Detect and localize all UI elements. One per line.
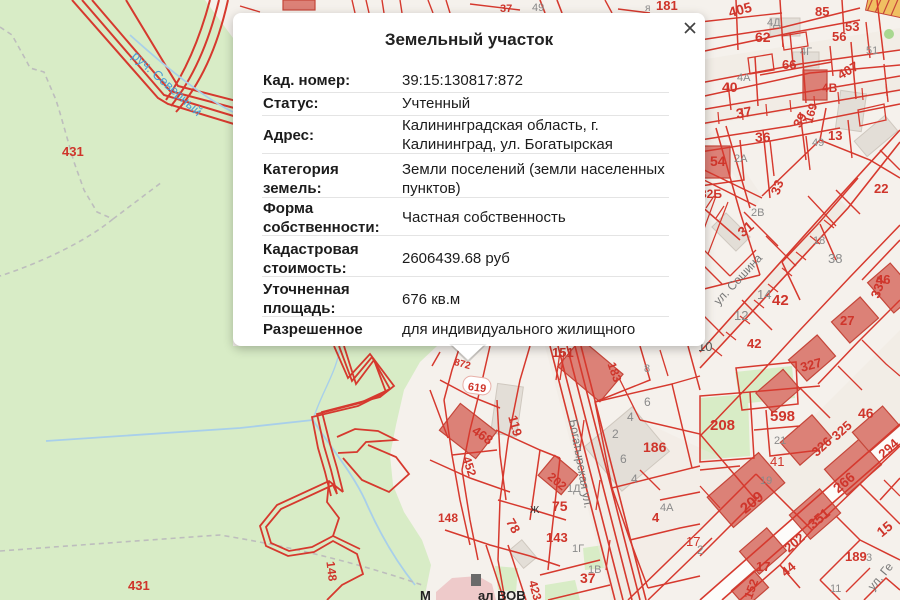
svg-text:19: 19 (760, 475, 772, 487)
svg-text:37: 37 (735, 103, 753, 121)
svg-text:4: 4 (631, 472, 638, 486)
svg-text:4Г: 4Г (800, 46, 812, 58)
svg-text:27: 27 (840, 313, 854, 328)
svg-text:6: 6 (644, 395, 651, 409)
svg-text:598: 598 (770, 408, 795, 425)
svg-text:6: 6 (620, 452, 627, 466)
svg-text:75: 75 (552, 498, 568, 514)
svg-text:2: 2 (697, 543, 704, 557)
svg-text:4: 4 (627, 410, 634, 424)
svg-text:4В: 4В (822, 81, 838, 95)
svg-text:51: 51 (866, 45, 878, 57)
svg-text:2В: 2В (751, 207, 764, 219)
svg-text:22: 22 (874, 181, 888, 196)
svg-text:2А: 2А (734, 153, 748, 165)
svg-text:53: 53 (845, 19, 859, 34)
svg-text:13: 13 (828, 128, 842, 143)
svg-text:151: 151 (552, 345, 574, 360)
svg-text:21: 21 (774, 435, 786, 447)
svg-text:17: 17 (756, 559, 770, 574)
svg-text:42: 42 (772, 292, 789, 309)
svg-text:49: 49 (812, 137, 824, 149)
svg-text:619: 619 (467, 381, 487, 395)
svg-text:148: 148 (438, 511, 458, 525)
svg-text:1Г: 1Г (572, 543, 584, 555)
svg-text:1В: 1В (588, 564, 601, 576)
svg-text:208: 208 (710, 417, 735, 434)
svg-text:3: 3 (866, 552, 872, 564)
svg-text:181: 181 (656, 0, 678, 13)
svg-text:2: 2 (612, 427, 619, 441)
svg-text:85: 85 (815, 4, 829, 19)
svg-text:42: 42 (747, 336, 761, 351)
svg-text:М: М (420, 588, 431, 600)
svg-text:8: 8 (644, 363, 650, 375)
svg-text:14: 14 (757, 287, 771, 302)
svg-text:11: 11 (830, 583, 841, 595)
svg-text:66: 66 (782, 57, 796, 72)
svg-text:40: 40 (722, 79, 738, 95)
svg-text:186: 186 (643, 439, 667, 455)
svg-text:38: 38 (828, 251, 842, 266)
svg-text:143: 143 (546, 530, 568, 545)
svg-text:41: 41 (770, 454, 784, 469)
svg-text:148: 148 (323, 560, 339, 582)
svg-text:36: 36 (755, 129, 771, 145)
svg-text:54: 54 (710, 153, 726, 169)
svg-text:4: 4 (652, 510, 660, 525)
svg-text:12: 12 (734, 308, 748, 323)
svg-text:189: 189 (845, 549, 867, 564)
svg-text:431: 431 (128, 578, 150, 593)
svg-text:Ж: Ж (530, 505, 540, 516)
svg-text:62: 62 (755, 29, 771, 45)
svg-text:4А: 4А (660, 502, 674, 514)
svg-text:46: 46 (858, 405, 874, 421)
svg-text:431: 431 (62, 144, 84, 159)
svg-text:4Д: 4Д (767, 17, 781, 29)
svg-text:4А: 4А (737, 72, 751, 84)
svg-text:18: 18 (813, 235, 825, 247)
svg-text:ал ВОВ: ал ВОВ (478, 588, 526, 600)
